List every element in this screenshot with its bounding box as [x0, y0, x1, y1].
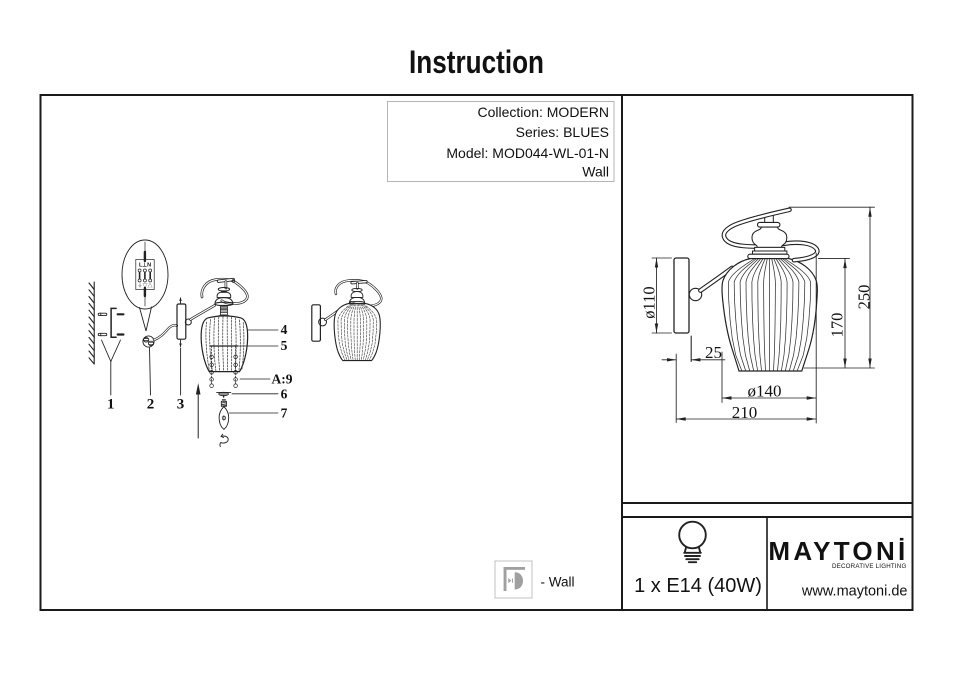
svg-text:Model: MOD044-WL-01-N: Model: MOD044-WL-01-N — [446, 145, 609, 161]
svg-text:⏚▽△: ⏚▽△ — [137, 283, 152, 290]
svg-text:MAYTONİ: MAYTONİ — [768, 536, 908, 566]
svg-text:- Wall: - Wall — [541, 575, 575, 590]
svg-text:A:9: A:9 — [272, 372, 293, 387]
svg-text:210: 210 — [732, 403, 758, 422]
svg-text:ø110: ø110 — [640, 286, 659, 318]
svg-text:Series: BLUES: Series: BLUES — [516, 124, 609, 140]
svg-text:5: 5 — [281, 338, 288, 353]
svg-text:DECORATIVE LIGHTING: DECORATIVE LIGHTING — [832, 563, 907, 570]
svg-text:Instruction: Instruction — [409, 44, 544, 80]
svg-text:1 x E14 (40W): 1 x E14 (40W) — [634, 575, 762, 597]
svg-text:ø140: ø140 — [748, 382, 782, 401]
svg-text:3: 3 — [177, 397, 185, 413]
svg-text:www.maytoni.de: www.maytoni.de — [801, 584, 908, 600]
svg-text:2: 2 — [147, 397, 155, 413]
svg-text:25: 25 — [705, 343, 722, 362]
svg-text:4: 4 — [281, 322, 288, 337]
svg-text:Collection: MODERN: Collection: MODERN — [478, 104, 609, 120]
svg-text:6: 6 — [281, 387, 288, 402]
svg-text:170: 170 — [828, 313, 847, 338]
svg-text:250: 250 — [855, 285, 874, 310]
svg-text:Wall: Wall — [582, 164, 609, 180]
svg-text:7: 7 — [281, 406, 288, 421]
svg-text:L⊥N: L⊥N — [139, 262, 151, 269]
svg-text:1: 1 — [107, 397, 115, 413]
